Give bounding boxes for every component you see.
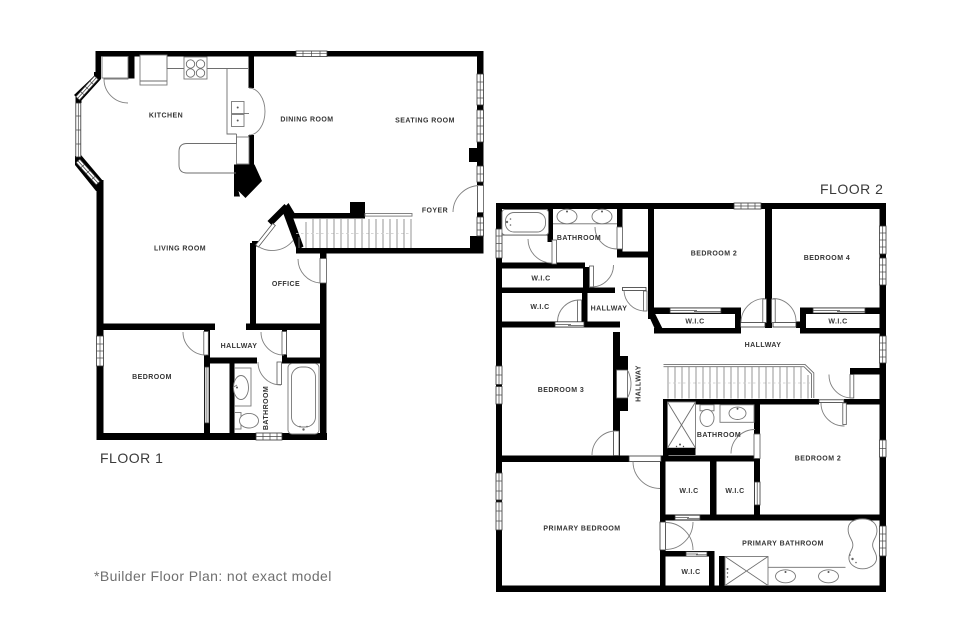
svg-text:OFFICE: OFFICE bbox=[272, 281, 300, 288]
svg-text:BEDROOM: BEDROOM bbox=[132, 374, 172, 381]
svg-text:PRIMARY BEDROOM: PRIMARY BEDROOM bbox=[543, 526, 620, 533]
svg-text:LIVING ROOM: LIVING ROOM bbox=[154, 246, 206, 253]
svg-text:W.I.C: W.I.C bbox=[685, 319, 704, 326]
svg-text:DINING ROOM: DINING ROOM bbox=[280, 117, 333, 124]
svg-text:FLOOR 2: FLOOR 2 bbox=[820, 181, 883, 197]
svg-text:PRIMARY BATHROOM: PRIMARY BATHROOM bbox=[742, 541, 824, 548]
svg-text:BEDROOM 2: BEDROOM 2 bbox=[691, 251, 737, 258]
svg-text:KITCHEN: KITCHEN bbox=[149, 113, 183, 120]
svg-text:FOYER: FOYER bbox=[422, 208, 448, 215]
svg-text:W.I.C: W.I.C bbox=[828, 319, 847, 326]
svg-text:BEDROOM 2: BEDROOM 2 bbox=[795, 456, 841, 463]
svg-text:SEATING ROOM: SEATING ROOM bbox=[395, 118, 455, 125]
svg-text:BATHROOM: BATHROOM bbox=[263, 386, 270, 430]
svg-text:HALLWAY: HALLWAY bbox=[221, 343, 258, 350]
svg-text:BATHROOM: BATHROOM bbox=[697, 432, 741, 439]
svg-text:FLOOR 1: FLOOR 1 bbox=[100, 450, 163, 466]
svg-text:BEDROOM 4: BEDROOM 4 bbox=[804, 255, 850, 262]
svg-text:W.I.C: W.I.C bbox=[679, 488, 698, 495]
svg-text:*Builder Floor Plan: not exact: *Builder Floor Plan: not exact model bbox=[94, 568, 332, 584]
svg-text:HALLWAY: HALLWAY bbox=[636, 365, 643, 402]
svg-text:W.I.C: W.I.C bbox=[531, 276, 550, 283]
svg-text:W.I.C: W.I.C bbox=[530, 304, 549, 311]
svg-text:W.I.C: W.I.C bbox=[725, 488, 744, 495]
svg-text:BATHROOM: BATHROOM bbox=[557, 235, 601, 242]
svg-text:BEDROOM 3: BEDROOM 3 bbox=[538, 387, 584, 394]
svg-text:HALLWAY: HALLWAY bbox=[591, 306, 628, 313]
svg-text:HALLWAY: HALLWAY bbox=[745, 342, 782, 349]
svg-text:W.I.C: W.I.C bbox=[681, 569, 700, 576]
